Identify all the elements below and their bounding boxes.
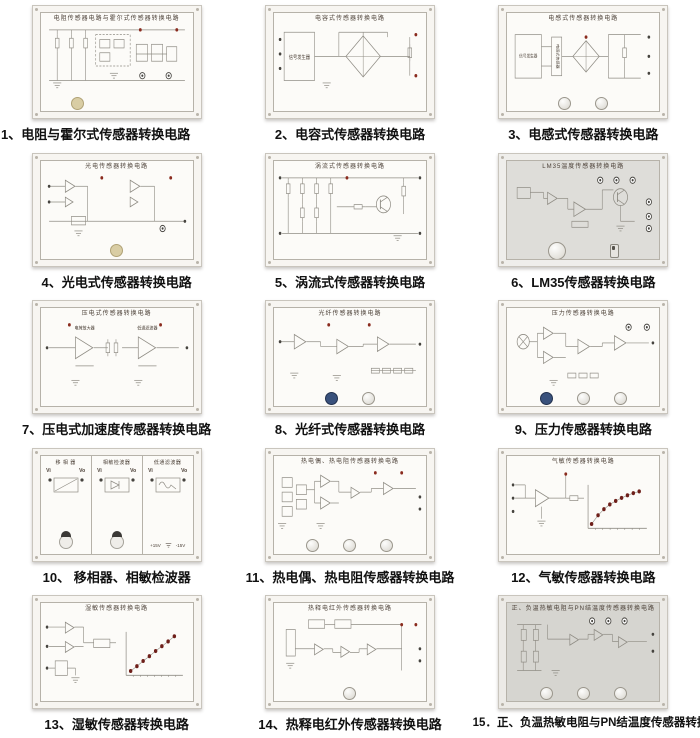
- circuit-diagram: [507, 320, 659, 390]
- screw-icon: [662, 303, 665, 306]
- screw-icon: [268, 156, 271, 159]
- knob-row: [274, 243, 426, 259]
- screw-icon: [429, 156, 432, 159]
- knob-row: [274, 685, 426, 701]
- knob: [614, 392, 627, 405]
- screw-icon: [196, 451, 199, 454]
- knob-row: [274, 538, 426, 554]
- screw-icon: [501, 703, 504, 706]
- panel-title: 涡流式传感器转换电路: [274, 161, 426, 173]
- section-title: 移 相 器: [56, 459, 76, 466]
- catalog-item: 电感式传感器转换电路 信号发生器电感式传感器 3、电感式传感器转换电路: [467, 0, 700, 148]
- input-terminal-label: Vi: [46, 468, 51, 474]
- screw-icon: [429, 556, 432, 559]
- screw-icon: [196, 598, 199, 601]
- screw-icon: [429, 113, 432, 116]
- item-caption: 11、热电偶、热电阻传感器转换电路: [233, 567, 466, 586]
- terminal-labels: ViVo: [97, 468, 136, 474]
- catalog-item: 电阻传感器电路与霍尔式传感器转换电路 1、电阻与霍尔式传感器转换电路: [0, 0, 233, 148]
- screw-icon: [429, 598, 432, 601]
- screw-icon: [501, 408, 504, 411]
- item-caption: 4、光电式传感器转换电路: [0, 272, 233, 291]
- screw-icon: [501, 261, 504, 264]
- screw-icon: [268, 556, 271, 559]
- device-photo[interactable]: 移 相 器ViVo相敏检波器ViVo低通滤波器ViVo+15V-15V: [32, 448, 202, 562]
- panel-title: 热释电红外传感器转换电路: [274, 603, 426, 615]
- catalog-item: 压电式传感器转换电路 电荷放大器低通滤波器 7、压电式加速度传感器转换电路: [0, 295, 233, 443]
- device-photo[interactable]: 气敏传感器转换电路: [498, 448, 668, 562]
- panel-sections: 移 相 器ViVo相敏检波器ViVo低通滤波器ViVo+15V-15V: [41, 456, 193, 554]
- screw-icon: [196, 113, 199, 116]
- screw-icon: [501, 598, 504, 601]
- item-caption: 6、LM35传感器转换电路: [467, 272, 700, 291]
- panel-label: 信号发生器: [289, 53, 311, 61]
- catalog-item: 光电传感器转换电路 4、光电式传感器转换电路: [0, 148, 233, 296]
- screw-icon: [429, 408, 432, 411]
- circuit-diagram: [274, 173, 426, 243]
- item-caption: 5、涡流式传感器转换电路: [233, 272, 466, 291]
- catalog-item: LM35温度传感器转换电路 6、LM35传感器转换电路: [467, 148, 700, 296]
- screw-icon: [429, 303, 432, 306]
- device-photo[interactable]: 光电传感器转换电路: [32, 153, 202, 267]
- panel-face: 电阻传感器电路与霍尔式传感器转换电路: [40, 12, 194, 112]
- item-caption: 8、光纤式传感器转换电路: [233, 419, 466, 438]
- panel-face: 移 相 器ViVo相敏检波器ViVo低通滤波器ViVo+15V-15V: [40, 455, 194, 555]
- knob: [540, 392, 553, 405]
- screw-icon: [268, 8, 271, 11]
- item-caption: 3、电感式传感器转换电路: [467, 124, 700, 143]
- screw-icon: [501, 303, 504, 306]
- panel-title: 湿敏传感器转换电路: [41, 603, 193, 615]
- knob: [540, 687, 553, 700]
- device-photo[interactable]: 热释电红外传感器转换电路: [265, 595, 435, 709]
- screw-icon: [268, 408, 271, 411]
- screw-icon: [662, 408, 665, 411]
- knob-row: [507, 538, 659, 554]
- knob-row: [41, 95, 193, 111]
- knob: [343, 687, 356, 700]
- knob-row: [507, 390, 659, 406]
- ground-icon: [165, 542, 172, 548]
- screw-icon: [35, 303, 38, 306]
- catalog-item: 热释电红外传感器转换电路 14、热释电红外传感器转换电路: [233, 590, 466, 738]
- circuit-diagram: [274, 468, 426, 538]
- screw-icon: [196, 408, 199, 411]
- item-caption: 14、热释电红外传感器转换电路: [233, 714, 466, 733]
- knob: [325, 392, 338, 405]
- section-title: 低通滤波器: [154, 459, 182, 466]
- catalog-item: 电容式传感器转换电路 信号发生器 2、电容式传感器转换电路: [233, 0, 466, 148]
- output-terminal-label: Vo: [130, 468, 136, 474]
- screw-icon: [501, 451, 504, 454]
- panel-face: 涡流式传感器转换电路: [273, 160, 427, 260]
- screw-icon: [501, 156, 504, 159]
- device-photo[interactable]: 湿敏传感器转换电路: [32, 595, 202, 709]
- screw-icon: [196, 703, 199, 706]
- screw-icon: [662, 703, 665, 706]
- screw-icon: [662, 261, 665, 264]
- screw-icon: [268, 451, 271, 454]
- panel-face: 压力传感器转换电路: [506, 307, 660, 407]
- panel-title: 压力传感器转换电路: [507, 308, 659, 320]
- screw-icon: [196, 8, 199, 11]
- screw-icon: [501, 556, 504, 559]
- circuit-diagram: 信号发生器电感式传感器: [507, 25, 659, 95]
- panel-section: 低通滤波器ViVo+15V-15V: [143, 456, 193, 554]
- circuit-diagram: [507, 468, 659, 538]
- device-photo[interactable]: 电容式传感器转换电路 信号发生器: [265, 5, 435, 119]
- panel-face: 正、负温热敏电阻与PN结温度传感器转换电路: [506, 602, 660, 702]
- device-photo[interactable]: LM35温度传感器转换电路: [498, 153, 668, 267]
- panel-face: 压电式传感器转换电路 电荷放大器低通滤波器: [40, 307, 194, 407]
- circuit-diagram: 信号发生器: [274, 25, 426, 95]
- section-title: 相敏检波器: [103, 459, 131, 466]
- panel-title: 正、负温热敏电阻与PN结温度传感器转换电路: [507, 603, 659, 615]
- item-caption: 10、 移相器、相敏检波器: [0, 567, 233, 586]
- knob-row: [507, 243, 659, 259]
- circuit-diagram: 电荷放大器低通滤波器: [41, 320, 193, 390]
- screw-icon: [196, 303, 199, 306]
- panel-section: 相敏检波器ViVo: [92, 456, 143, 554]
- panel-title: 光电传感器转换电路: [41, 161, 193, 173]
- positive-supply-label: +15V: [150, 543, 161, 548]
- screw-icon: [35, 8, 38, 11]
- knob: [595, 97, 608, 110]
- screw-icon: [196, 156, 199, 159]
- panel-title: 压电式传感器转换电路: [41, 308, 193, 320]
- catalog-item: 光纤传感器转换电路 8、光纤式传感器转换电路: [233, 295, 466, 443]
- negative-supply-label: -15V: [176, 543, 186, 548]
- terminal-labels: ViVo: [46, 468, 85, 474]
- panel-face: 气敏传感器转换电路: [506, 455, 660, 555]
- section-symbol: [46, 476, 86, 496]
- catalog-item: 压力传感器转换电路 9、压力传感器转换电路: [467, 295, 700, 443]
- device-photo[interactable]: 电阻传感器电路与霍尔式传感器转换电路: [32, 5, 202, 119]
- item-caption: 12、气敏传感器转换电路: [467, 567, 700, 586]
- knob: [614, 687, 627, 700]
- knob: [306, 539, 319, 552]
- screw-icon: [662, 556, 665, 559]
- screw-icon: [35, 408, 38, 411]
- knob: [59, 535, 73, 549]
- panel-face: 电容式传感器转换电路 信号发生器: [273, 12, 427, 112]
- panel-face: 光纤传感器转换电路: [273, 307, 427, 407]
- panel-title: 电感式传感器转换电路: [507, 13, 659, 25]
- terminal-labels: ViVo: [148, 468, 187, 474]
- screw-icon: [35, 113, 38, 116]
- device-photo[interactable]: 压电式传感器转换电路 电荷放大器低通滤波器: [32, 300, 202, 414]
- knob: [71, 97, 84, 110]
- panel-title: 气敏传感器转换电路: [507, 456, 659, 468]
- screw-icon: [196, 261, 199, 264]
- power-labels: +15V-15V: [150, 542, 185, 548]
- device-photo[interactable]: 涡流式传感器转换电路: [265, 153, 435, 267]
- device-photo[interactable]: 正、负温热敏电阻与PN结温度传感器转换电路: [498, 595, 668, 709]
- item-caption: 15．正、负温热敏电阻与PN结温度传感器转换电路: [461, 714, 700, 730]
- device-photo[interactable]: 电感式传感器转换电路 信号发生器电感式传感器: [498, 5, 668, 119]
- screw-icon: [501, 8, 504, 11]
- section-symbol: [148, 476, 188, 496]
- input-terminal-label: Vi: [148, 468, 153, 474]
- output-terminal-label: Vo: [181, 468, 187, 474]
- screw-icon: [35, 451, 38, 454]
- circuit-diagram: [41, 173, 193, 243]
- screw-icon: [662, 598, 665, 601]
- screw-icon: [35, 598, 38, 601]
- circuit-diagram: [41, 615, 193, 685]
- screw-icon: [429, 703, 432, 706]
- catalog-item: 正、负温热敏电阻与PN结温度传感器转换电路 15．正、负温热敏电阻与PN结温度传…: [467, 590, 700, 738]
- screw-icon: [268, 703, 271, 706]
- screw-icon: [35, 156, 38, 159]
- device-photo[interactable]: 压力传感器转换电路: [498, 300, 668, 414]
- item-caption: 9、压力传感器转换电路: [467, 419, 700, 438]
- knob-row: [41, 685, 193, 701]
- catalog-item: 移 相 器ViVo相敏检波器ViVo低通滤波器ViVo+15V-15V 10、 …: [0, 443, 233, 591]
- knob: [548, 242, 566, 260]
- panel-title: 电容式传感器转换电路: [274, 13, 426, 25]
- knob-row: [41, 390, 193, 406]
- panel-face: 光电传感器转换电路: [40, 160, 194, 260]
- screw-icon: [429, 261, 432, 264]
- panel-section: 移 相 器ViVo: [41, 456, 92, 554]
- screw-icon: [662, 113, 665, 116]
- knob-row: [274, 390, 426, 406]
- item-caption: 13、湿敏传感器转换电路: [0, 714, 233, 733]
- knob-row: [507, 95, 659, 111]
- panel-face: 热电偶、热电阻传感器转换电路: [273, 455, 427, 555]
- catalog-item: 热电偶、热电阻传感器转换电路 11、热电偶、热电阻传感器转换电路: [233, 443, 466, 591]
- circuit-diagram: [507, 615, 659, 685]
- panel-face: LM35温度传感器转换电路: [506, 160, 660, 260]
- knob: [380, 539, 393, 552]
- knob-row: [41, 243, 193, 259]
- circuit-diagram: [41, 25, 193, 95]
- panel-face: 热释电红外传感器转换电路: [273, 602, 427, 702]
- screw-icon: [35, 703, 38, 706]
- item-caption: 1、电阻与霍尔式传感器转换电路: [0, 124, 234, 143]
- screw-icon: [662, 156, 665, 159]
- panel-face: 电感式传感器转换电路 信号发生器电感式传感器: [506, 12, 660, 112]
- catalog-grid: 电阻传感器电路与霍尔式传感器转换电路 1、电阻与霍尔式传感器转换电路 电容式传感…: [0, 0, 700, 738]
- knob-row: [507, 685, 659, 701]
- screw-icon: [268, 303, 271, 306]
- panel-title: LM35温度传感器转换电路: [507, 161, 659, 173]
- panel-title: 热电偶、热电阻传感器转换电路: [274, 456, 426, 468]
- screw-icon: [268, 261, 271, 264]
- catalog-item: 涡流式传感器转换电路 5、涡流式传感器转换电路: [233, 148, 466, 296]
- device-photo[interactable]: 光纤传感器转换电路: [265, 300, 435, 414]
- knob-row: [274, 95, 426, 111]
- circuit-diagram: [507, 173, 659, 243]
- panel-label: 电荷放大器: [74, 324, 95, 332]
- screw-icon: [268, 598, 271, 601]
- screw-icon: [35, 556, 38, 559]
- catalog-item: 气敏传感器转换电路 12、气敏传感器转换电路: [467, 443, 700, 591]
- knob: [558, 97, 571, 110]
- section-symbol: [97, 476, 137, 496]
- panel-title: 电阻传感器电路与霍尔式传感器转换电路: [41, 13, 193, 25]
- panel-label: 低通滤波器: [137, 324, 158, 332]
- toggle-switch-icon: [610, 244, 619, 258]
- knob: [362, 392, 375, 405]
- panel-title: 光纤传感器转换电路: [274, 308, 426, 320]
- panel-label: 电感式传感器: [556, 44, 561, 69]
- screw-icon: [196, 556, 199, 559]
- screw-icon: [429, 8, 432, 11]
- item-caption: 2、电容式传感器转换电路: [233, 124, 466, 143]
- screw-icon: [268, 113, 271, 116]
- item-caption: 7、压电式加速度传感器转换电路: [0, 419, 233, 438]
- device-photo[interactable]: 热电偶、热电阻传感器转换电路: [265, 448, 435, 562]
- screw-icon: [662, 8, 665, 11]
- knob: [577, 392, 590, 405]
- knob: [577, 687, 590, 700]
- output-terminal-label: Vo: [79, 468, 85, 474]
- circuit-diagram: [274, 320, 426, 390]
- screw-icon: [429, 451, 432, 454]
- catalog-item: 湿敏传感器转换电路 13、湿敏传感器转换电路: [0, 590, 233, 738]
- knob: [343, 539, 356, 552]
- knob: [110, 535, 124, 549]
- input-terminal-label: Vi: [97, 468, 102, 474]
- panel-face: 湿敏传感器转换电路: [40, 602, 194, 702]
- screw-icon: [662, 451, 665, 454]
- screw-icon: [35, 261, 38, 264]
- panel-label: 信号发生器: [519, 52, 537, 58]
- knob: [110, 244, 123, 257]
- screw-icon: [501, 113, 504, 116]
- circuit-diagram: [274, 615, 426, 685]
